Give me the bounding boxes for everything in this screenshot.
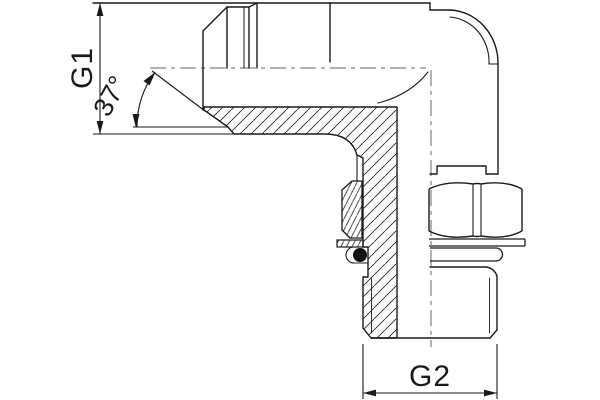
o-ring-section — [353, 248, 367, 262]
fitting-outline — [93, 3, 498, 338]
o-ring-side-view — [430, 248, 503, 261]
washer — [429, 239, 525, 246]
technical-drawing-canvas: G1 37° G2 — [0, 0, 600, 400]
flare-cone-line — [152, 71, 205, 111]
locknut-section — [342, 181, 362, 238]
g2-arrow-right — [484, 390, 497, 397]
g1-arrow-up — [97, 3, 104, 16]
angle-arrow-top — [144, 72, 156, 86]
g2-label: G2 — [409, 360, 451, 393]
g1-arrow-down — [97, 121, 104, 134]
elbow-fitting-drawing: G1 37° G2 — [0, 0, 600, 400]
angle-arrow-bottom — [133, 114, 140, 128]
washer-section — [337, 240, 363, 247]
section-hatching — [204, 107, 397, 338]
angle-dimension — [133, 71, 229, 128]
g1-label: G1 — [66, 47, 99, 89]
body-section — [204, 107, 397, 338]
g2-arrow-left — [363, 390, 376, 397]
hex-locknut — [429, 183, 522, 237]
